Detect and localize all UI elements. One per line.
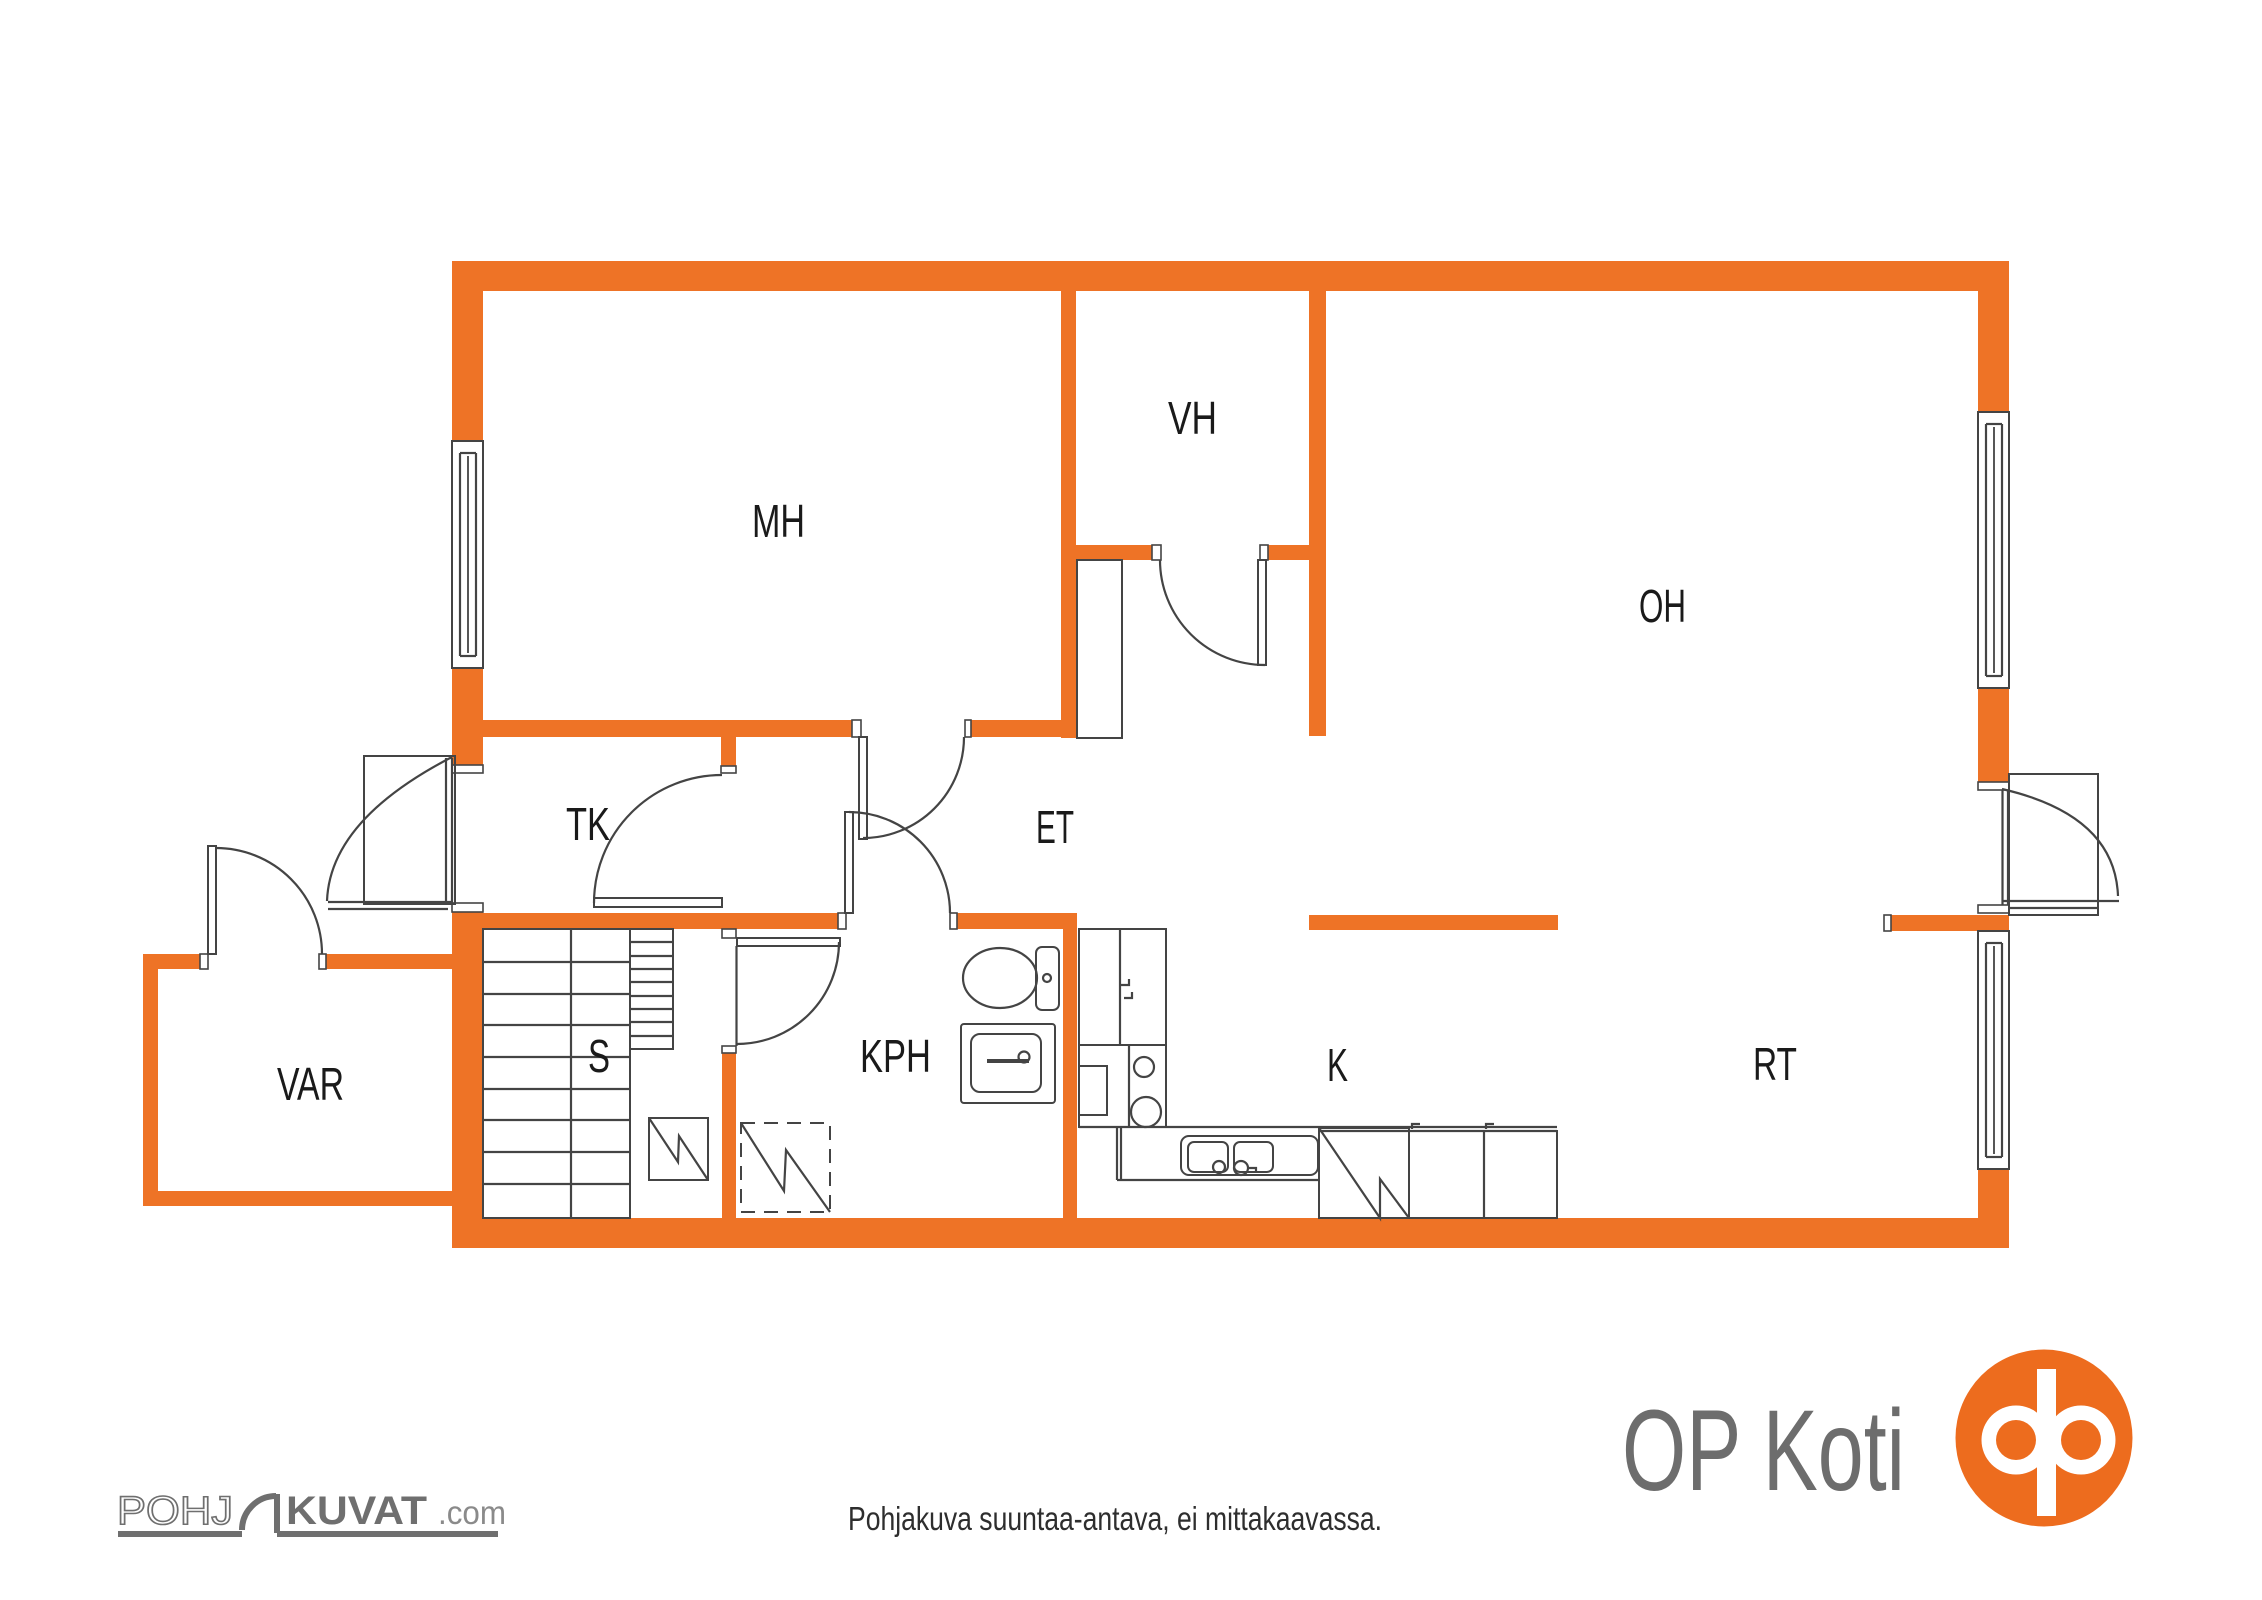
svg-text:MH: MH	[752, 495, 805, 547]
svg-text:RT: RT	[1753, 1038, 1797, 1090]
svg-text:OP Koti: OP Koti	[1622, 1387, 1905, 1515]
svg-text:POHJ: POHJ	[117, 1489, 233, 1533]
svg-text:ET: ET	[1036, 801, 1074, 853]
svg-text:TK: TK	[566, 798, 610, 850]
svg-text:OH: OH	[1639, 580, 1686, 632]
svg-text:KUVAT: KUVAT	[286, 1489, 427, 1533]
svg-text:VH: VH	[1168, 392, 1217, 444]
svg-text:S: S	[588, 1030, 610, 1082]
svg-text:VAR: VAR	[277, 1058, 344, 1110]
svg-text:K: K	[1327, 1039, 1348, 1091]
svg-text:KPH: KPH	[860, 1030, 931, 1082]
svg-text:.com: .com	[438, 1494, 506, 1531]
svg-text:Pohjakuva suuntaa-antava, ei m: Pohjakuva suuntaa-antava, ei mittakaavas…	[848, 1500, 1382, 1537]
